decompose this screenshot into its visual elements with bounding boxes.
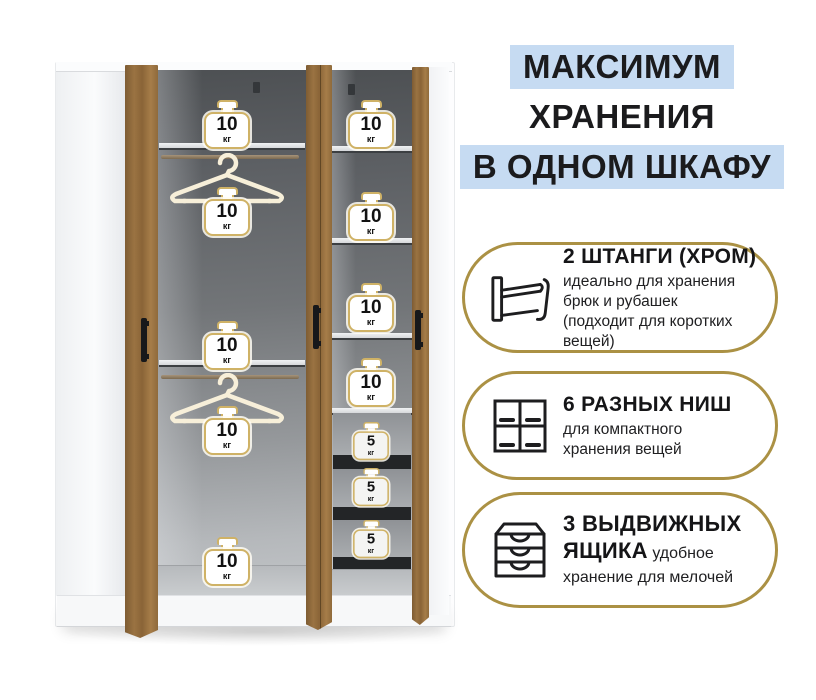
door-handle (415, 310, 421, 350)
feature-title: 2 ШТАНГИ (ХРОМ) (563, 244, 756, 270)
weight-capacity-badge: 10кг (348, 283, 394, 332)
clothes-rail-icon (489, 270, 551, 326)
weight-capacity-badge: 10кг (204, 321, 250, 370)
drawer-gap (333, 557, 411, 569)
weight-capacity-badge: 10кг (348, 192, 394, 241)
niches-icon (489, 398, 551, 454)
weight-capacity-badge: 5кг (353, 520, 389, 558)
drawer-gap (333, 507, 411, 520)
plinth (57, 595, 451, 627)
headline-line-2: ХРАНЕНИЯ (440, 95, 804, 139)
weight-capacity-badge: 10кг (204, 187, 250, 236)
feature-card-niches: 6 РАЗНЫХ НИШ для компактного хранения ве… (462, 371, 778, 480)
feature-title: 6 РАЗНЫХ НИШ (563, 392, 732, 418)
weight-capacity-badge: 10кг (348, 358, 394, 407)
feature-description: идеально для хранения брюк и рубашек (по… (563, 272, 749, 352)
info-column: МАКСИМУМ ХРАНЕНИЯ В ОДНОМ ШКАФУ 2 ШТАНГ (440, 0, 804, 700)
weight-capacity-badge: 5кг (353, 422, 389, 460)
feature-card-rails: 2 ШТАНГИ (ХРОМ) идеально для хранения бр… (462, 242, 778, 353)
infographic-page: 10кг 10кг 10кг 10кг 10кг 10кг 10кг (0, 0, 816, 700)
cabinet-side-panel (56, 66, 126, 596)
headline-line-3: В ОДНОМ ШКАФУ (440, 145, 804, 189)
open-door-back (429, 67, 449, 615)
weight-capacity-badge: 10кг (204, 537, 250, 586)
door-handle (313, 305, 319, 349)
shelf (332, 333, 412, 340)
weight-capacity-badge: 10кг (348, 100, 394, 149)
drawers-icon (489, 520, 551, 580)
headline-line-1: МАКСИМУМ (440, 45, 804, 89)
door-handle (141, 318, 147, 362)
weight-capacity-badge: 10кг (204, 406, 250, 455)
hinge-mark (348, 84, 355, 95)
wardrobe-illustration: 10кг 10кг 10кг 10кг 10кг 10кг 10кг (55, 60, 455, 660)
feature-description: для компактного хранения вещей (563, 420, 731, 460)
weight-capacity-badge: 5кг (353, 468, 389, 506)
hinge-mark (253, 82, 260, 93)
door-edge (306, 65, 332, 630)
weight-capacity-badge: 10кг (204, 100, 250, 149)
feature-card-drawers: 3 ВЫДВИЖНЫХ ЯЩИКА удобное хранение для м… (462, 492, 778, 608)
